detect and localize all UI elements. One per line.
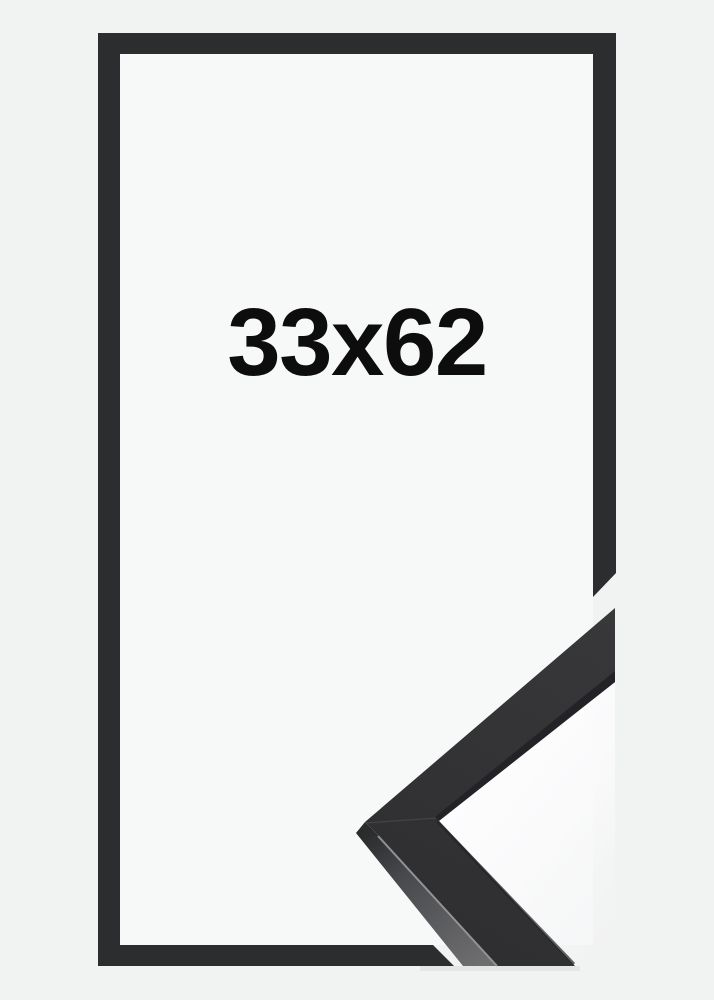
frame-product-image: 33x62 — [0, 0, 714, 1000]
corner-sample-shadow — [420, 966, 580, 971]
frame-size-illustration — [0, 0, 714, 1000]
size-label: 33x62 — [0, 295, 714, 391]
